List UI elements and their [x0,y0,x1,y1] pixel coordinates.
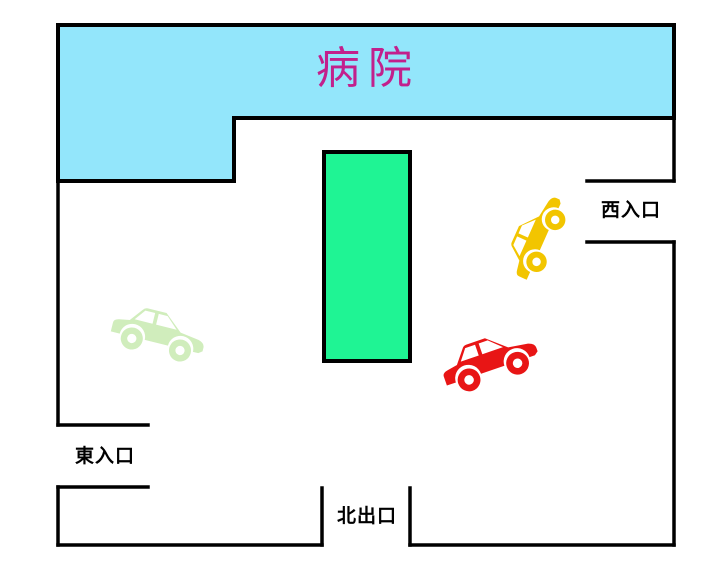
east-entrance-label: 東入口 [75,447,135,466]
west-entrance-label: 西入口 [601,201,661,220]
parking-lot-map: 病院 西入口 東入口 北出口 [0,0,722,587]
north-exit-label: 北出口 [337,507,397,526]
parking-island [324,152,410,361]
hospital-label: 病院 [316,47,676,91]
yellow-car-icon [500,189,573,285]
red-car-icon [436,323,542,398]
green-car-icon [108,301,210,367]
